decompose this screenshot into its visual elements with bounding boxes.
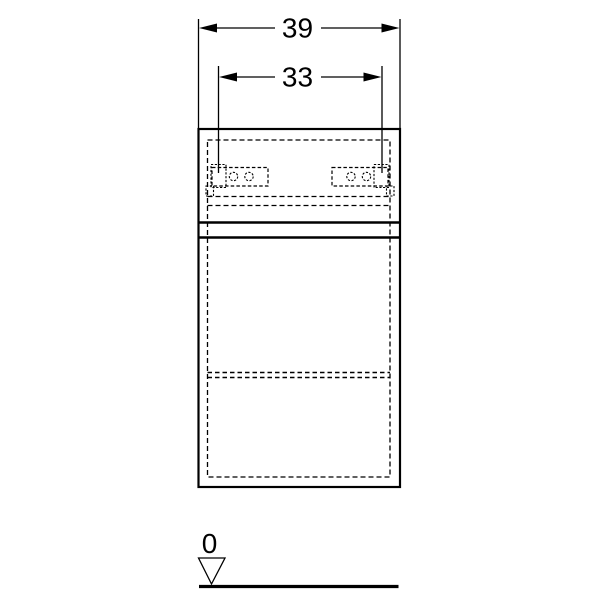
- technical-drawing: 39 33: [0, 0, 600, 600]
- hinge-rail: [332, 168, 388, 187]
- door-hidden-outline: [208, 140, 391, 477]
- arrow-right-icon: [364, 73, 382, 82]
- dimension-outer-width-label: 39: [282, 13, 313, 44]
- arrow-right-icon: [382, 24, 400, 33]
- arrow-left-icon: [219, 73, 237, 82]
- hinge-hole: [229, 172, 237, 180]
- dimension-hinge-spacing: 33: [219, 62, 383, 174]
- hinge-hole: [245, 172, 253, 180]
- hinge-hole: [347, 172, 355, 180]
- floor-datum: 0: [199, 528, 399, 587]
- datum-triangle-icon: [199, 558, 226, 584]
- hinge-right: [332, 165, 394, 197]
- cabinet-front-view: [199, 129, 401, 487]
- hinge-rail: [212, 168, 268, 187]
- floor-datum-label: 0: [202, 528, 218, 559]
- hinge-hole: [362, 172, 370, 180]
- cabinet-outline: [199, 129, 401, 487]
- hinge-left: [206, 165, 268, 197]
- dimension-hinge-spacing-label: 33: [282, 62, 313, 93]
- arrow-left-icon: [199, 24, 217, 33]
- technical-drawing-canvas: 39 33: [0, 0, 600, 600]
